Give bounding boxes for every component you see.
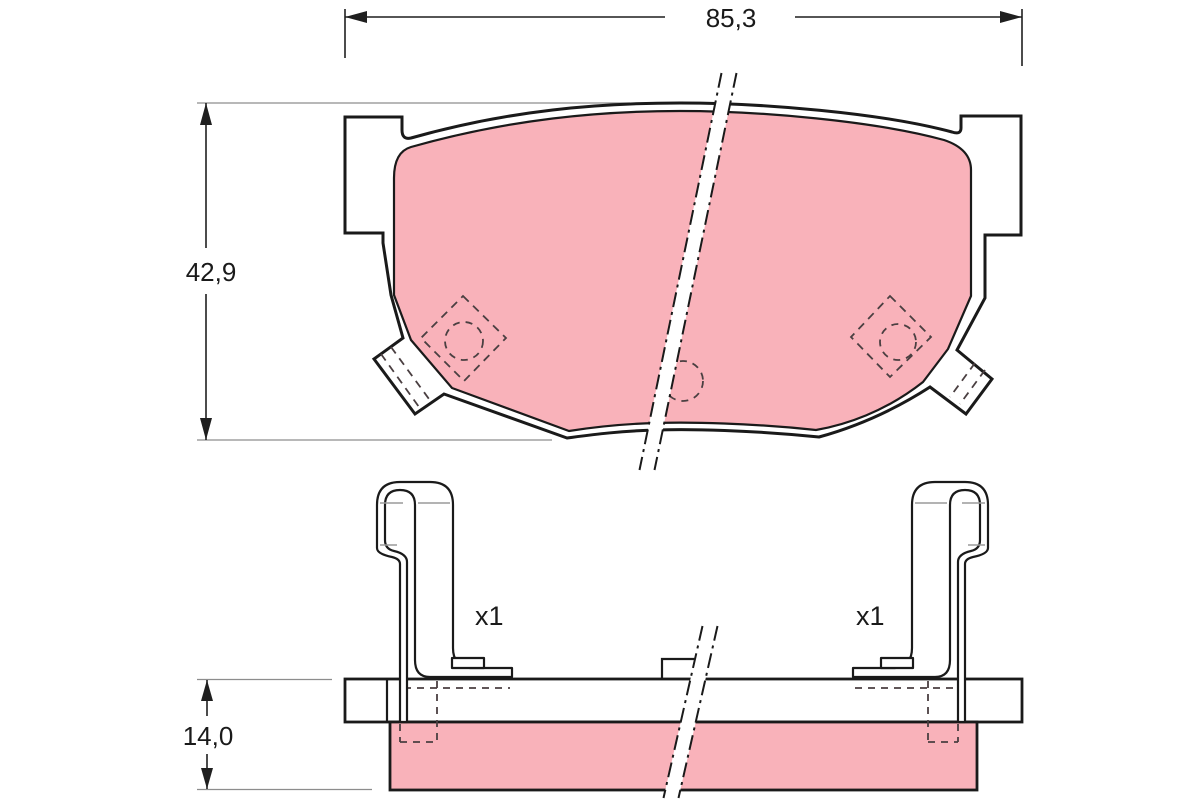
arrow-up-icon <box>200 103 212 125</box>
dimension-width: 85,3 <box>345 3 1022 66</box>
arrow-down-icon <box>201 768 213 789</box>
dimension-thickness-label: 14,0 <box>183 721 234 751</box>
plan-view <box>197 73 1021 470</box>
dimension-height-label: 42,9 <box>186 257 237 287</box>
arrow-left-icon <box>345 11 367 23</box>
spring-quantity-right: x1 <box>856 601 885 631</box>
arrow-up-icon <box>201 680 213 701</box>
dimension-height: 42,9 <box>186 103 237 440</box>
spring-foot-bump-right <box>881 658 913 668</box>
arrow-right-icon <box>1000 11 1022 23</box>
spring-foot-bump-left <box>452 658 484 668</box>
arrow-down-icon <box>200 418 212 440</box>
brake-pad-drawing: x1 x1 85,3 42,9 14,0 <box>0 0 1200 800</box>
technical-drawing-canvas: x1 x1 85,3 42,9 14,0 <box>0 0 1200 800</box>
dimension-thickness: 14,0 <box>183 680 234 789</box>
dimension-width-label: 85,3 <box>706 3 757 33</box>
spring-quantity-left: x1 <box>475 601 504 631</box>
profile-view: x1 x1 <box>197 482 1022 798</box>
